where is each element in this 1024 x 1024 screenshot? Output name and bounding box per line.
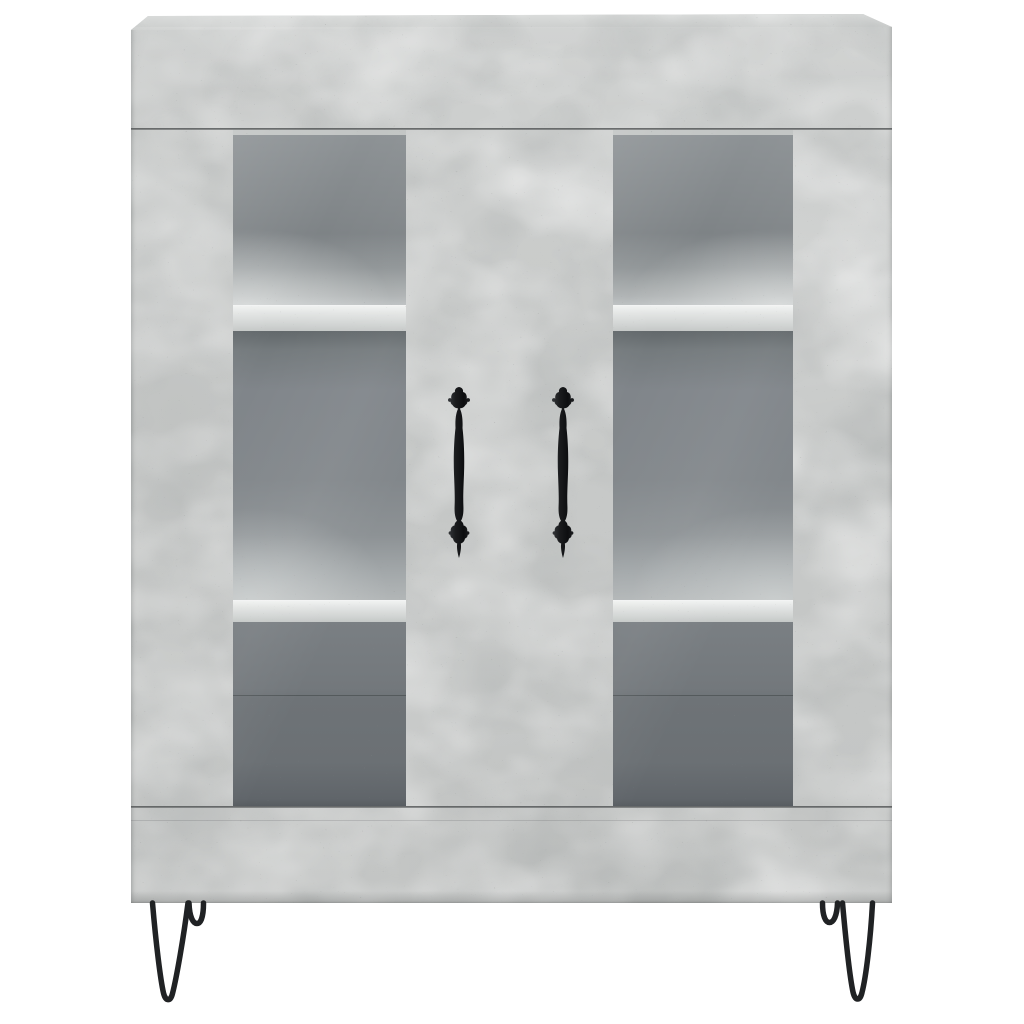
- hairpin-leg-front-right: [843, 903, 873, 999]
- sideboard-cabinet: [131, 13, 892, 903]
- glass-reflection: [233, 130, 406, 806]
- right-door-glass-panel: [613, 130, 793, 806]
- cabinet-bottom-edge-shadow: [131, 891, 892, 903]
- glass-reflection: [613, 130, 793, 806]
- product-photo-stage: [0, 0, 1024, 1024]
- hairpin-leg-front-left: [153, 903, 189, 1000]
- door-gap-seam: [509, 17, 513, 901]
- left-door-glass-panel: [233, 130, 406, 806]
- hairpin-leg-back-left: [189, 903, 204, 924]
- hairpin-leg-back-right: [823, 903, 838, 923]
